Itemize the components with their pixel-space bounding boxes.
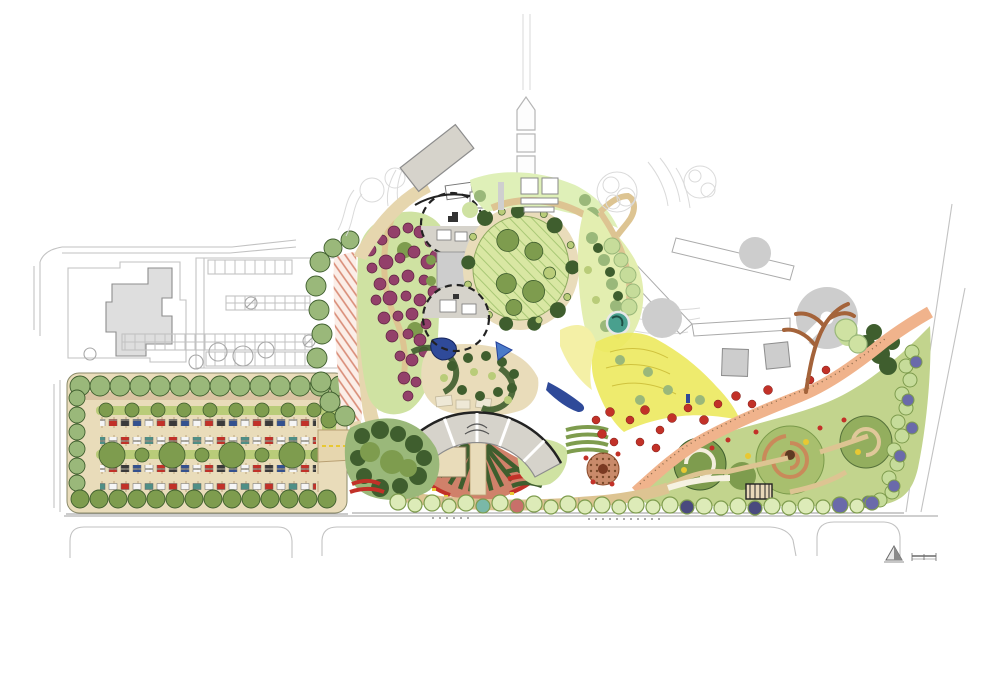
figure-marker [686,394,690,403]
trellis-structure [746,484,772,499]
pond-water-feature [607,312,629,334]
site-plan-sheet [0,0,1006,678]
new-parking-lot [67,373,358,513]
site-plan-canvas [0,0,1006,678]
fan-center-walk [470,437,486,495]
